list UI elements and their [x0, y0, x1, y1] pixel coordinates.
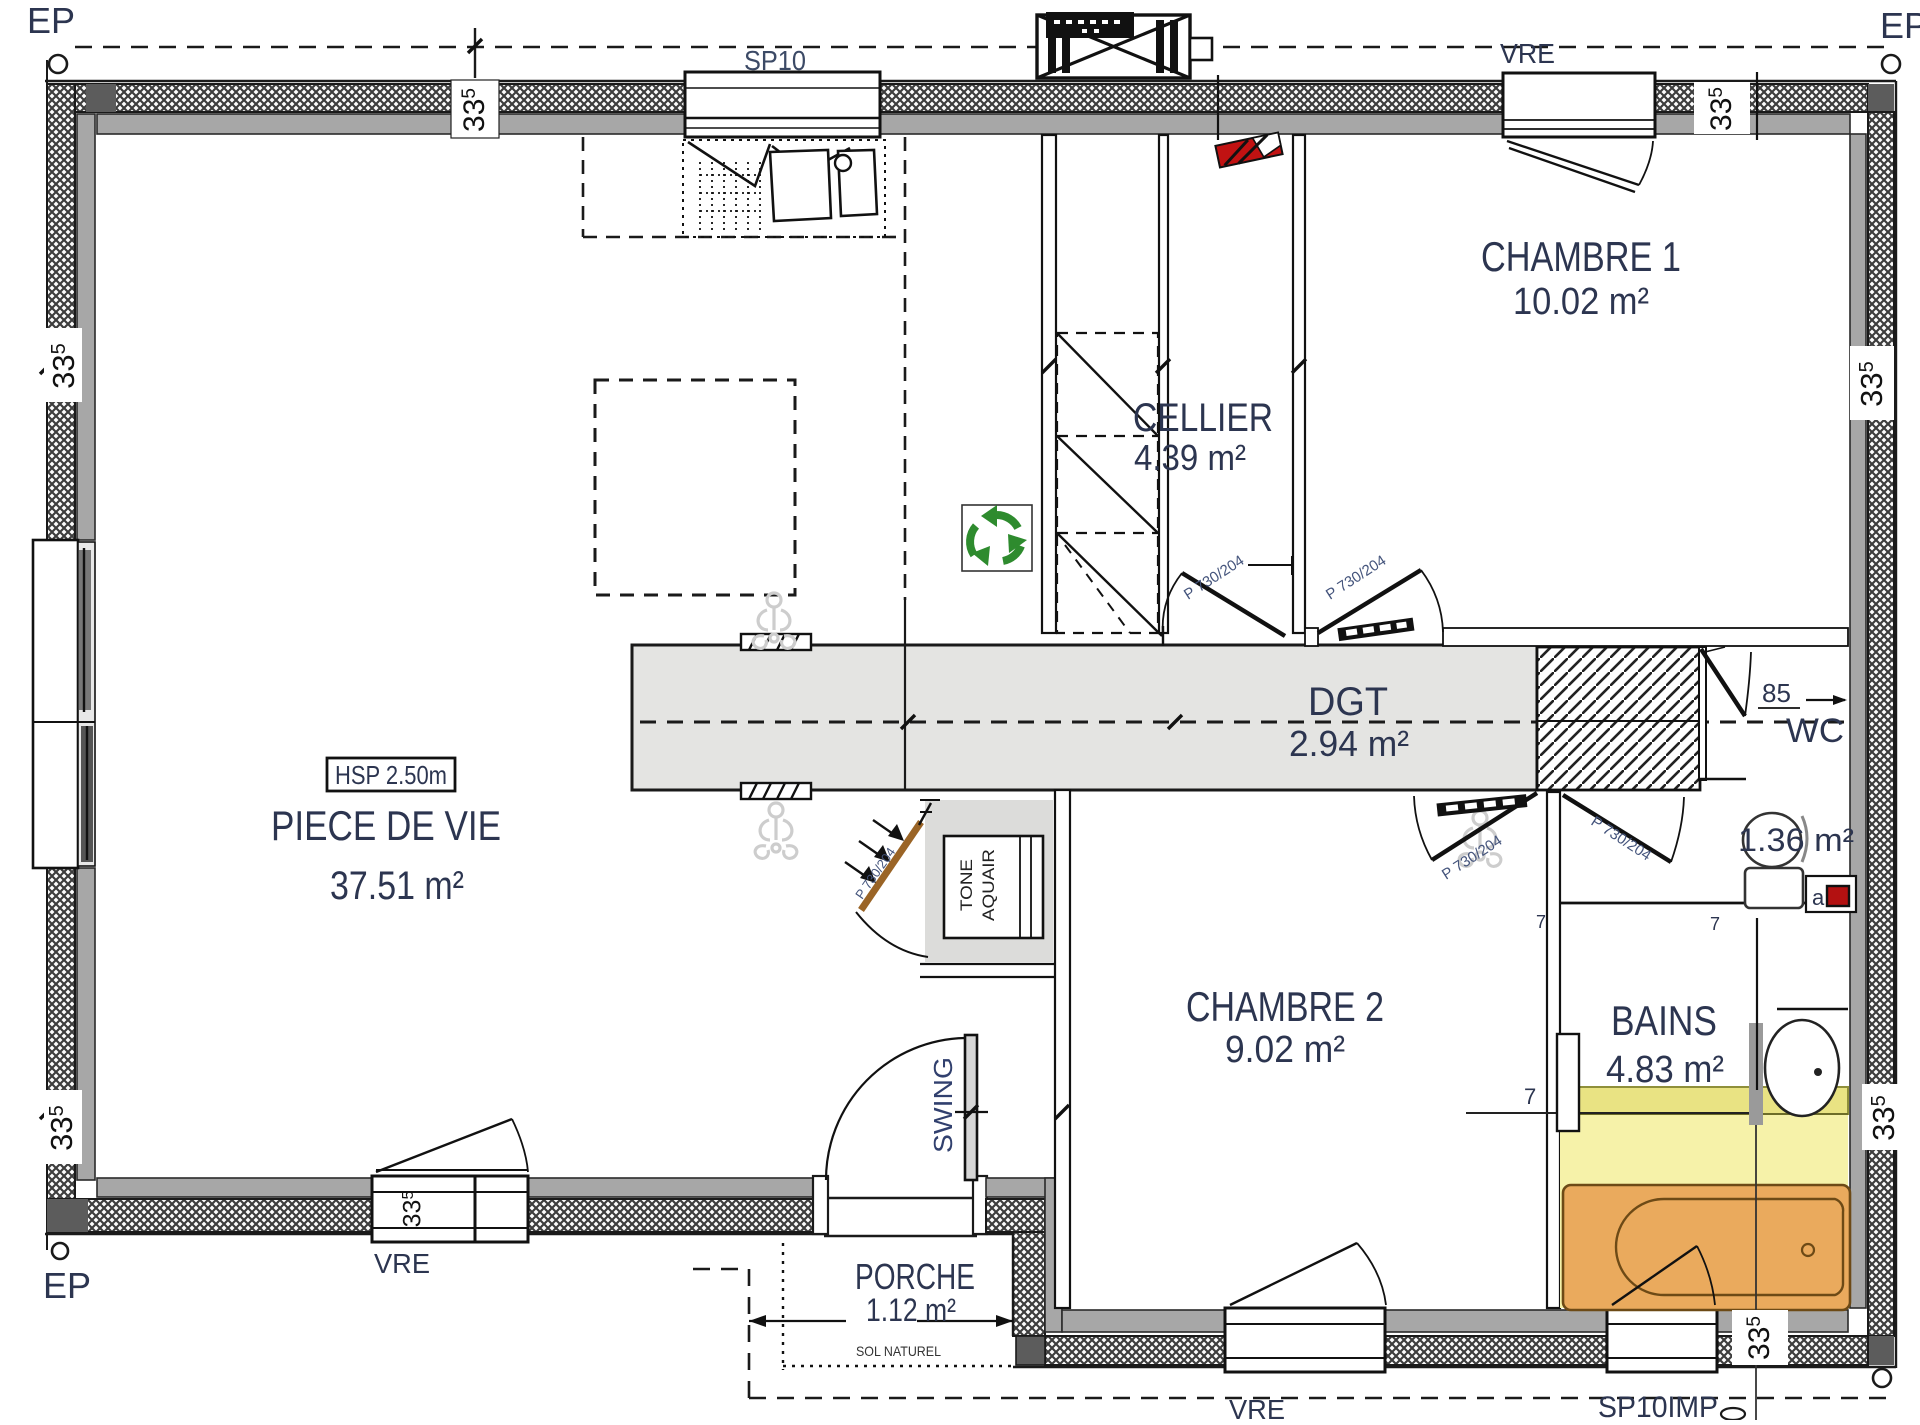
svg-text:a: a [1812, 885, 1825, 910]
svg-text:CELLIER: CELLIER [1133, 396, 1273, 440]
svg-text:4.83 m²: 4.83 m² [1606, 1049, 1724, 1091]
svg-text:PIECE DE VIE: PIECE DE VIE [271, 802, 501, 849]
svg-text:85: 85 [1762, 678, 1791, 708]
svg-text:10.02 m²: 10.02 m² [1513, 281, 1649, 323]
svg-text:1.36 m²: 1.36 m² [1738, 822, 1854, 858]
svg-text:CHAMBRE 1: CHAMBRE 1 [1481, 233, 1681, 280]
svg-text:EP: EP [1880, 5, 1920, 46]
svg-text:EP: EP [43, 1265, 91, 1306]
svg-text:VRE: VRE [374, 1248, 430, 1279]
svg-text:7: 7 [1710, 914, 1720, 934]
svg-text:37.51 m²: 37.51 m² [330, 864, 464, 908]
svg-text:4.39 m²: 4.39 m² [1134, 437, 1246, 478]
svg-text:WC: WC [1786, 712, 1844, 750]
svg-text:SWING: SWING [928, 1057, 958, 1153]
svg-text:AQUAIR: AQUAIR [979, 849, 998, 921]
svg-text:EP: EP [27, 0, 75, 41]
svg-text:SP10: SP10 [744, 45, 806, 76]
svg-text:VRE: VRE [1500, 38, 1555, 69]
svg-text:7: 7 [1524, 1084, 1536, 1109]
svg-text:HSP 2.50m: HSP 2.50m [335, 760, 447, 790]
svg-text:CHAMBRE 2: CHAMBRE 2 [1186, 983, 1384, 1030]
svg-text:PORCHE: PORCHE [855, 1256, 975, 1297]
svg-text:9.02 m²: 9.02 m² [1225, 1029, 1345, 1071]
svg-text:7: 7 [1536, 912, 1546, 932]
svg-text:SOL NATUREL: SOL NATUREL [856, 1343, 941, 1359]
svg-text:BAINS: BAINS [1611, 997, 1717, 1044]
svg-text:SP10IMP: SP10IMP [1598, 1391, 1718, 1420]
svg-text:1.12 m²: 1.12 m² [866, 1292, 956, 1328]
svg-text:VRE: VRE [1229, 1394, 1285, 1420]
svg-text:TONE: TONE [957, 859, 976, 911]
svg-text:DGT: DGT [1308, 680, 1388, 724]
svg-text:2.94 m²: 2.94 m² [1289, 723, 1409, 764]
